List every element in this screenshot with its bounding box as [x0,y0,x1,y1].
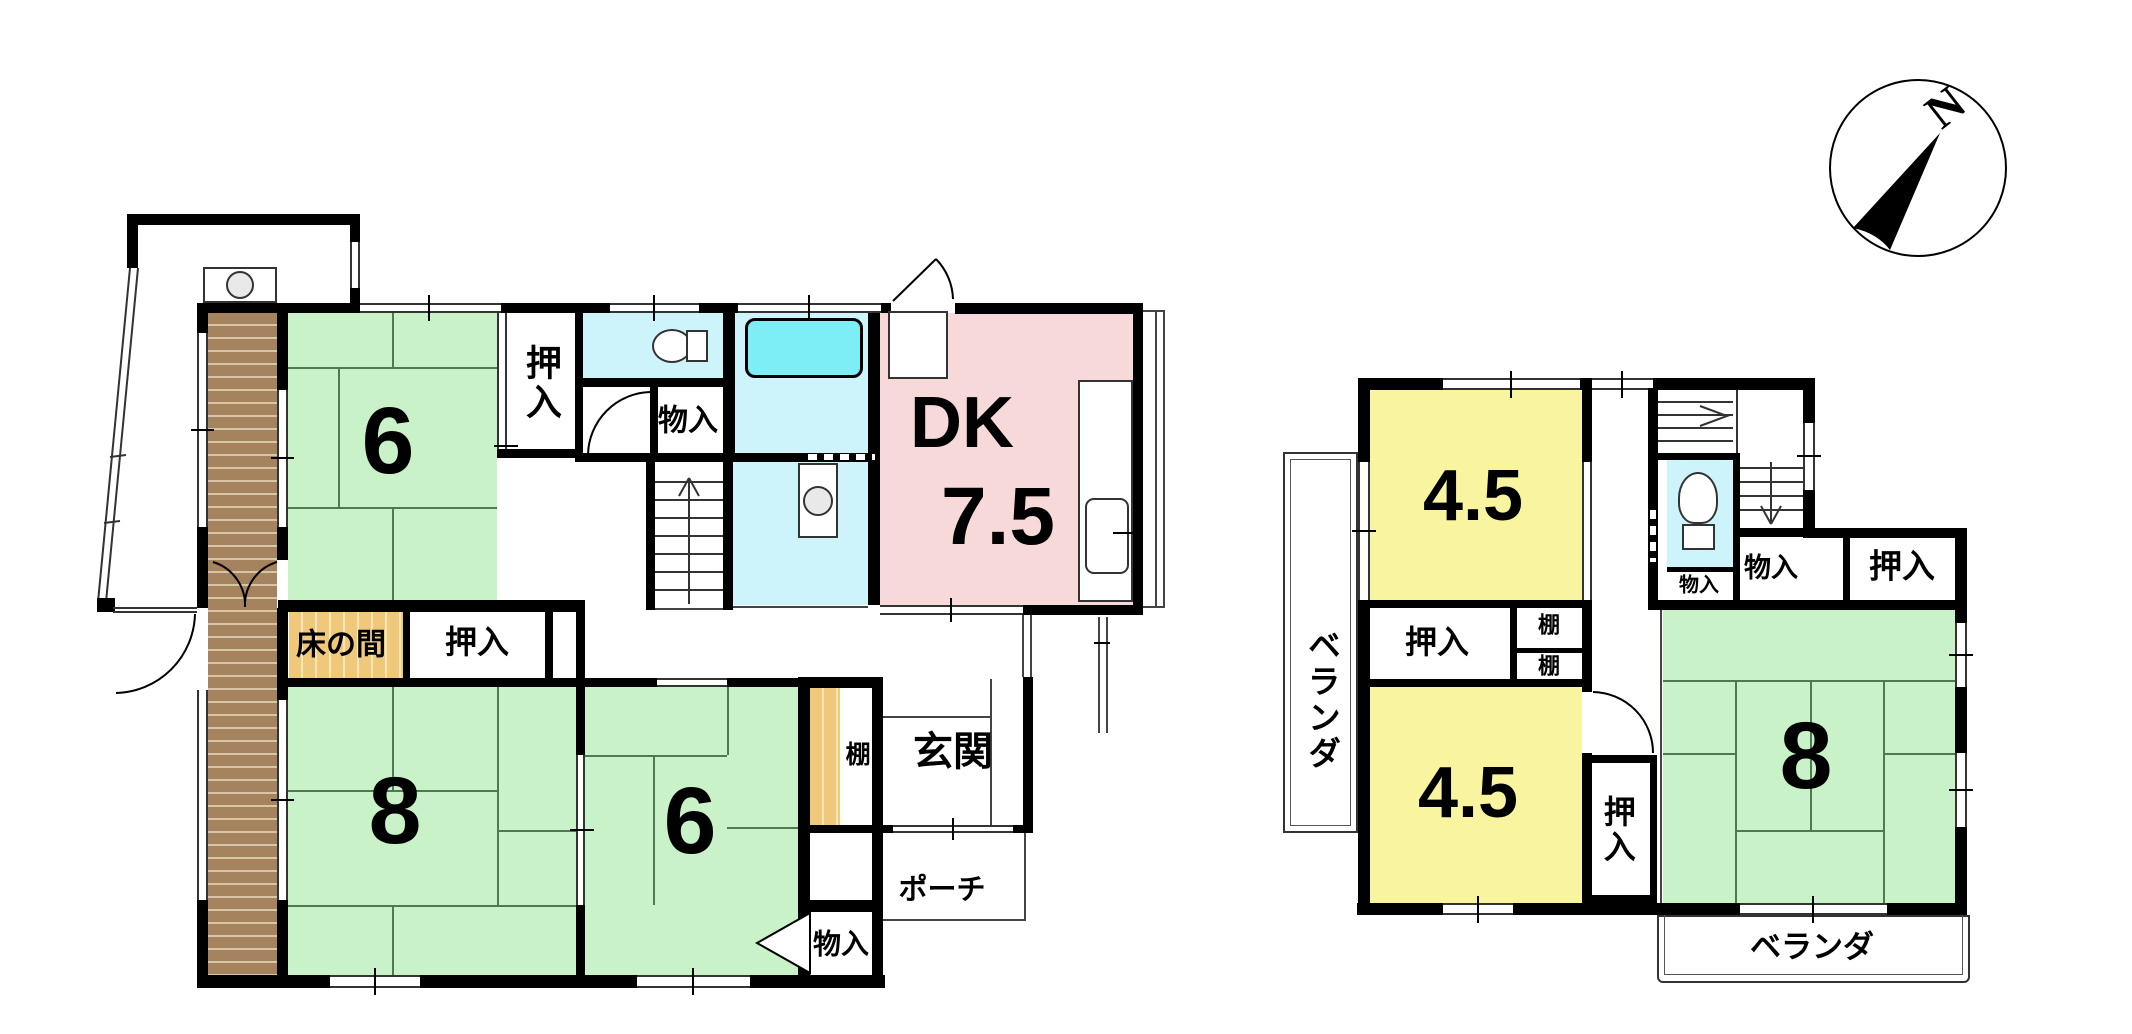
monoire-small-label: 物入 [1679,576,1719,597]
oshiire-center-label: 押入 [445,626,509,660]
room-8-2f-label: 8 [1780,707,1833,807]
oshiire-east-label: 押入 [1869,550,1935,585]
monoire-2f-label: 物入 [1744,554,1798,582]
room-4.5-south-label: 4.5 [1418,756,1518,832]
room-8-label: 8 [369,762,422,862]
tana-label: 棚 [843,741,869,769]
floor-plan: N [0,0,2132,1034]
oshiire-west-label: 押入 [1405,626,1469,660]
dk-size-label: 7.5 [941,474,1055,560]
dk-label: DK [910,386,1014,462]
veranda-west-label: ベランダ [1304,628,1339,772]
monoire-entry-label: 物入 [813,929,869,958]
oshiire-north-label: 押入 [522,344,560,422]
genkan-label: 玄関 [913,731,993,773]
tana-upper-label: 棚 [1538,613,1560,636]
tokonoma-label: 床の間 [296,629,386,661]
room-6-south-label: 6 [664,772,717,872]
room-6-north-label: 6 [362,392,415,492]
tana-lower-label: 棚 [1538,654,1560,677]
compass-needle-icon [1853,133,1940,250]
line-overlay [0,0,2132,1034]
room-4.5-north-label: 4.5 [1423,459,1523,535]
monoire-hall-label: 物入 [658,405,718,437]
porch-label: ポーチ [898,875,985,905]
veranda-south-label: ベランダ [1750,932,1874,965]
oshiire-south-label: 押入 [1600,795,1634,865]
